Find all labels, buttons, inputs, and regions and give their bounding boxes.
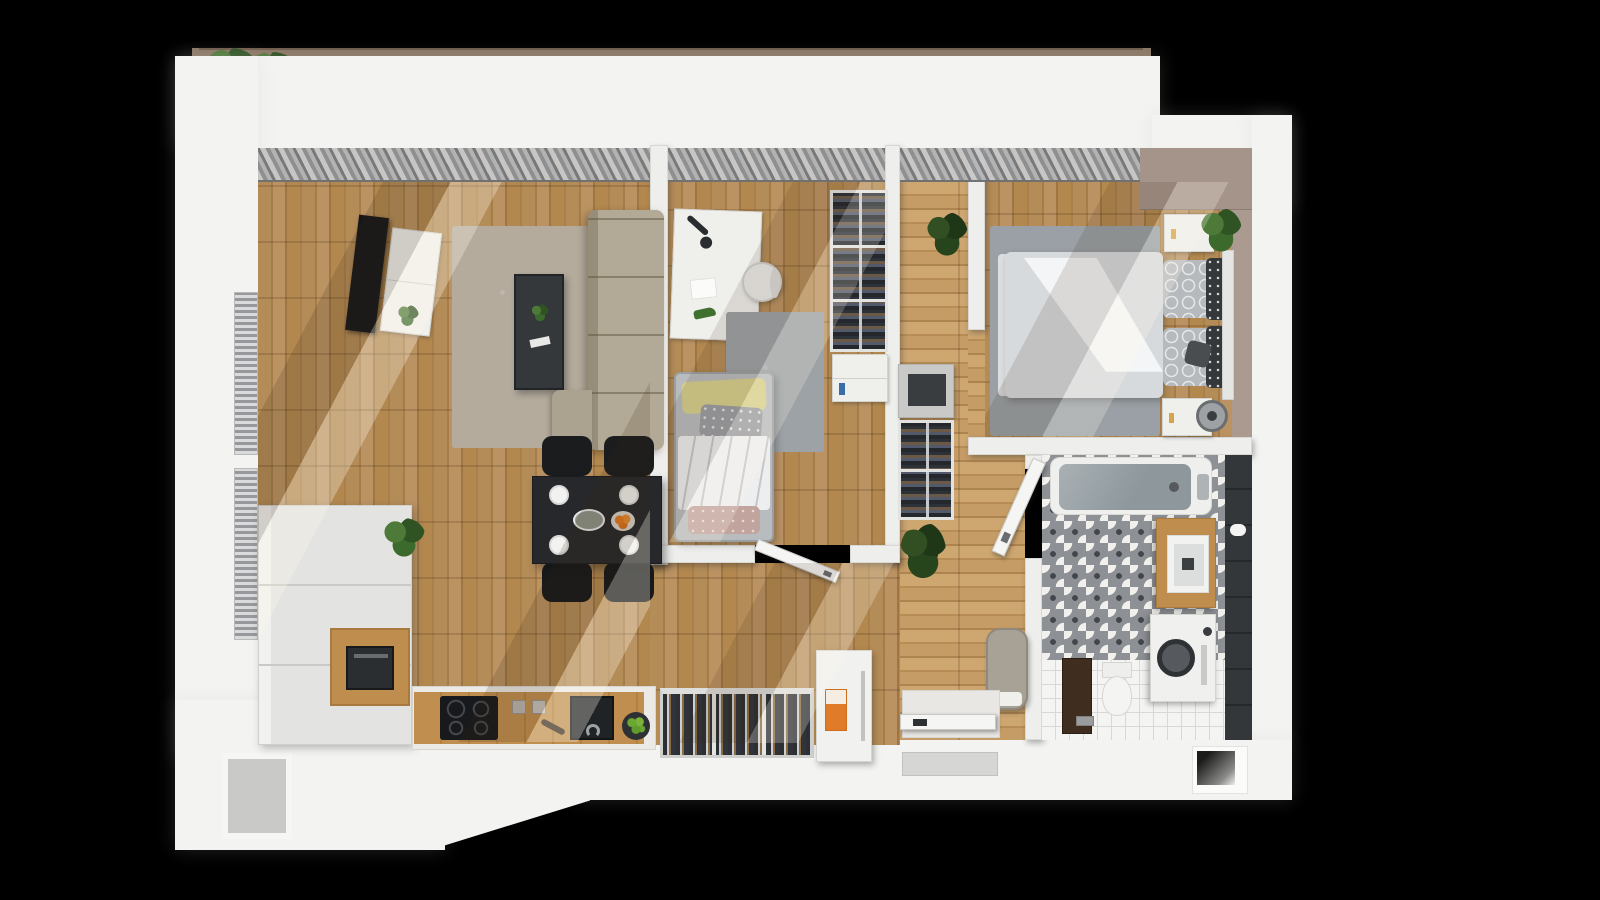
dining-table [532,476,662,564]
bathroom-sink-drain [1182,558,1194,570]
bedroom-accent-wall-top [1140,148,1252,210]
plate-rack-divider-1 [712,694,716,755]
study-dresser [832,354,888,402]
double-bed-duvet [1005,252,1163,398]
wall-bedroom-bathroom [968,437,1252,455]
pillow-gray-dotted [699,404,763,440]
toilet [1098,662,1136,716]
kitchen-cabinet-plant [382,518,426,558]
study-wardrobe-shelf-1 [833,245,885,248]
entrance-door [900,714,996,730]
hallway-console [898,364,954,418]
dinner-plate-3 [549,535,569,555]
induction-hob [440,696,498,740]
washing-machine [1150,614,1216,702]
plate-rack-cabinet [660,688,814,758]
coffee-table-tray [529,336,550,348]
nightstand-plant [1200,208,1242,254]
lime-bowl [622,712,650,740]
study-door-handle [823,570,832,578]
kitchen-jar-1 [512,700,526,714]
outer-wall-chamfer [430,740,590,850]
desk-lamp [686,214,709,236]
hallway-plant-north [926,212,968,258]
desk-lamp-base [700,236,712,248]
dining-chair-2 [604,436,654,476]
tv-cabinet-plant [396,304,421,329]
washing-machine-door [1157,639,1195,677]
balcony-railing [192,48,1150,56]
table-fan-hub [1207,411,1217,421]
dinner-plate-1 [549,485,569,505]
study-dresser-label [839,383,845,395]
fruit-bowl [611,511,635,531]
desk-stool [742,262,782,302]
bathtub-faucet [1197,474,1209,500]
dinner-plate-2 [619,485,639,505]
salad-plate [573,509,605,531]
nightstand-north-knob [1171,229,1176,239]
dining-chair-3 [542,562,592,602]
curtain-study [668,148,885,182]
window-blind-left-1 [234,292,258,455]
entrance-threshold [902,752,998,776]
floor-drain [1076,716,1094,726]
fridge-poster [825,689,847,731]
coffee-table-plant [531,304,549,322]
plate-rack-divider-2 [762,694,766,755]
nightstand-south-knob [1169,413,1174,423]
kitchen-faucet [586,724,600,738]
tv-cabinet-seam [387,279,435,286]
toilet-paper-holder [1230,524,1246,536]
toilet-bowl [1102,676,1132,716]
pillow-blush [688,506,760,534]
single-bed [674,372,774,542]
bathroom-door-handle [1001,531,1011,543]
curtain-living [258,148,650,182]
study-wardrobe [830,190,888,352]
wall-study-bottom-b [850,545,900,563]
table-fan [1196,400,1228,432]
outer-wall-right [1252,115,1292,745]
single-bed-duvet [678,436,770,510]
service-shaft-right [1192,746,1248,794]
washing-machine-knob [1203,627,1212,636]
hallway-plant-south [900,522,946,582]
curtain-bedroom [900,148,1140,182]
coffee-table [514,274,564,390]
study-dresser-seam [833,378,887,379]
bed-headboard [1222,250,1234,400]
hallway-wardrobe-shelf [901,469,951,472]
microwave-handle [354,654,388,658]
sofa-chaise [552,390,592,442]
dinner-plate-4 [619,535,639,555]
bathtub-drain [1169,482,1179,492]
washing-machine-panel [1201,645,1207,685]
service-shaft-right-shadow [1197,751,1235,785]
bathtub [1050,457,1212,515]
bathroom-sink [1167,535,1209,593]
fridge-handle [861,671,865,741]
fridge [816,650,872,762]
bedroom-doorway-floor [968,330,985,437]
kitchen-sink [570,696,614,740]
double-bed-duvet-fold [1005,252,1163,398]
microwave-niche [330,628,410,706]
outer-wall-top [175,56,1160,148]
dining-chair-1 [542,436,592,476]
corner-sofa [588,210,664,450]
wall-study-bottom-a [650,545,755,563]
hallway-console-tray [908,374,946,406]
desk-toy-dino [693,306,716,319]
bathroom-vanity [1156,518,1216,608]
kitchen-jar-2 [532,700,546,714]
desk-papers [690,277,718,300]
dining-chair-4 [604,562,654,602]
entrance-door-handle [913,719,927,726]
desk-stool-back [770,268,780,298]
hallway-wardrobe [898,420,954,520]
study-wardrobe-shelf-2 [833,299,885,302]
service-shaft-left [222,753,292,839]
window-blind-left-2 [234,468,258,640]
scene-floorplan [0,0,1600,900]
bathroom-wall-tiles-dark [1225,455,1252,740]
microwave [346,646,394,690]
